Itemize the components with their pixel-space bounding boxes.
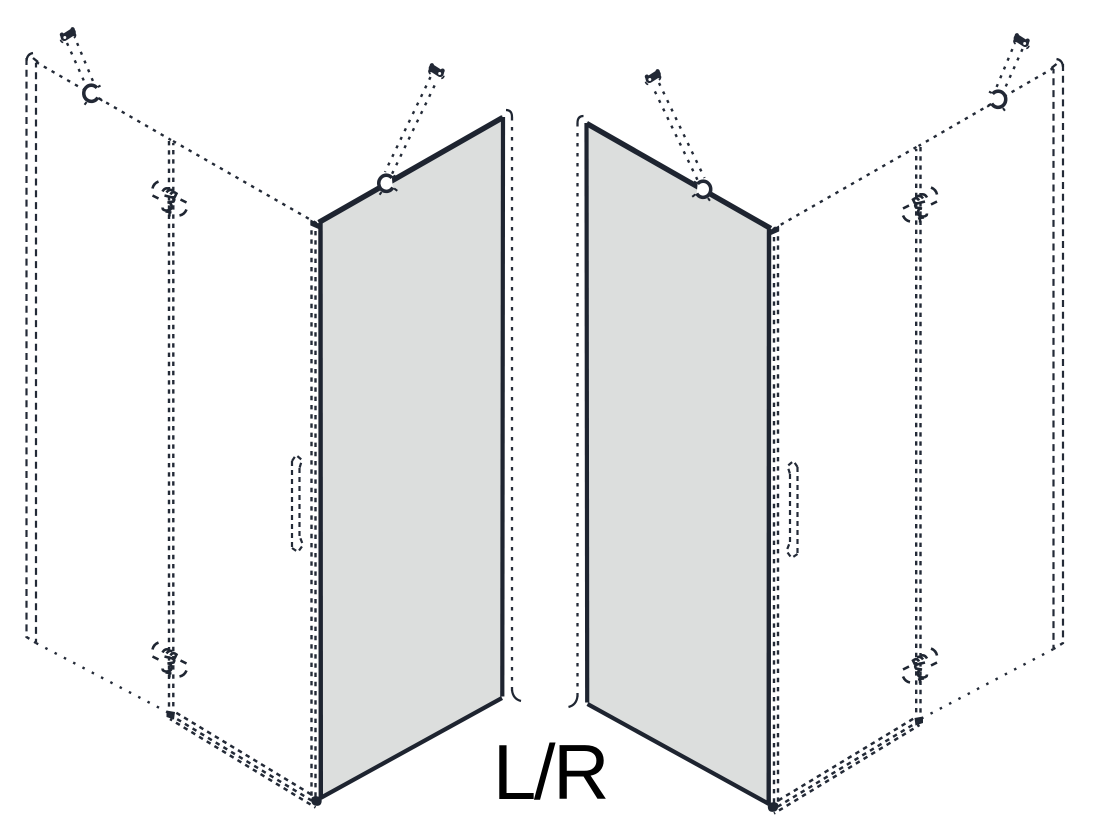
svg-text:L/R: L/R — [493, 728, 607, 816]
